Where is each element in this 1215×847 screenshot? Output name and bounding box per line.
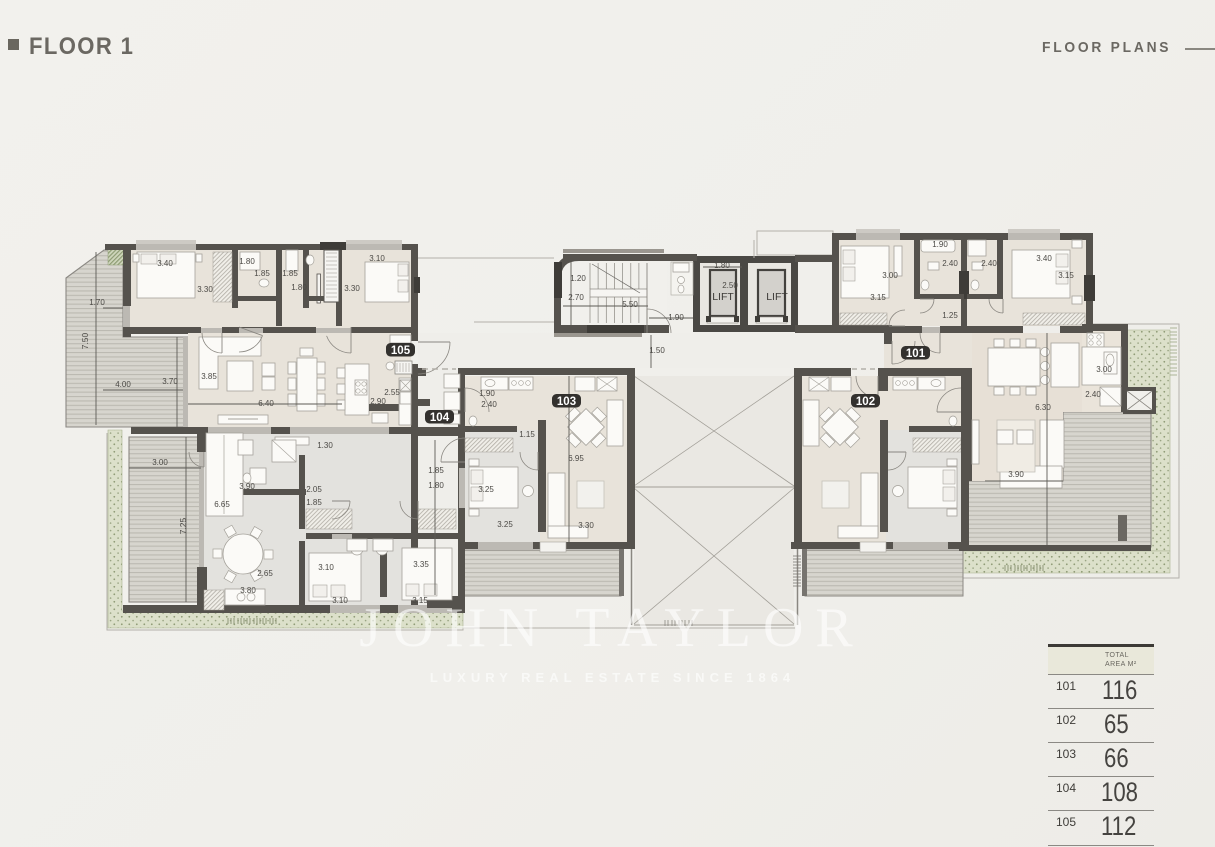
svg-text:3.80: 3.80 — [240, 586, 256, 595]
svg-text:7.50: 7.50 — [80, 332, 90, 349]
svg-text:2.40: 2.40 — [981, 259, 997, 268]
svg-text:1.80: 1.80 — [291, 283, 307, 292]
svg-text:3.85: 3.85 — [201, 372, 217, 381]
svg-text:5.50: 5.50 — [622, 300, 638, 309]
svg-text:1.50: 1.50 — [649, 346, 665, 355]
svg-text:3.40: 3.40 — [157, 259, 173, 268]
svg-text:1.80: 1.80 — [239, 257, 255, 266]
svg-text:1.80: 1.80 — [714, 261, 730, 270]
svg-text:2.55: 2.55 — [384, 388, 400, 397]
svg-text:103: 103 — [557, 396, 576, 408]
svg-text:2.40: 2.40 — [942, 259, 958, 268]
svg-text:101: 101 — [906, 348, 926, 360]
svg-text:3.00: 3.00 — [1096, 365, 1112, 374]
svg-text:102: 102 — [856, 396, 875, 408]
svg-text:6.40: 6.40 — [258, 399, 274, 408]
svg-text:3.15: 3.15 — [1058, 271, 1074, 280]
svg-text:3.90: 3.90 — [1008, 470, 1024, 479]
svg-text:2.50: 2.50 — [722, 281, 738, 290]
svg-text:1.85: 1.85 — [428, 466, 444, 475]
svg-text:104: 104 — [430, 412, 450, 424]
svg-text:1.90: 1.90 — [932, 240, 948, 249]
svg-text:1.80: 1.80 — [428, 481, 444, 490]
svg-text:3.40: 3.40 — [1036, 254, 1052, 263]
svg-text:2.40: 2.40 — [481, 400, 497, 409]
svg-text:2.70: 2.70 — [568, 293, 584, 302]
svg-text:3.00: 3.00 — [882, 271, 898, 280]
svg-text:2.40: 2.40 — [1085, 390, 1101, 399]
svg-text:3.10: 3.10 — [369, 254, 385, 263]
svg-text:3.25: 3.25 — [497, 520, 513, 529]
svg-text:1.90: 1.90 — [668, 313, 684, 322]
svg-text:6.30: 6.30 — [1035, 403, 1051, 412]
svg-text:1.85: 1.85 — [254, 269, 270, 278]
svg-text:3.25: 3.25 — [478, 485, 494, 494]
svg-text:1.25: 1.25 — [942, 311, 958, 320]
svg-text:1.90: 1.90 — [479, 389, 495, 398]
svg-text:6.95: 6.95 — [568, 454, 584, 463]
svg-text:3.30: 3.30 — [344, 284, 360, 293]
svg-text:105: 105 — [391, 345, 411, 357]
svg-text:3.70: 3.70 — [162, 377, 178, 386]
svg-text:1.20: 1.20 — [570, 274, 586, 283]
svg-text:LIFT: LIFT — [766, 291, 788, 303]
svg-text:3.10: 3.10 — [318, 563, 334, 572]
svg-text:4.00: 4.00 — [115, 380, 131, 389]
svg-text:6.65: 6.65 — [214, 500, 230, 509]
svg-text:1.85: 1.85 — [282, 269, 298, 278]
svg-text:1.70: 1.70 — [89, 298, 105, 307]
svg-text:1.15: 1.15 — [519, 430, 535, 439]
svg-text:1.30: 1.30 — [317, 441, 333, 450]
svg-text:2.90: 2.90 — [370, 397, 386, 406]
svg-text:1.85: 1.85 — [306, 498, 322, 507]
svg-text:3.00: 3.00 — [152, 458, 168, 467]
svg-text:LIFT: LIFT — [712, 291, 734, 303]
svg-text:3.35: 3.35 — [413, 560, 429, 569]
svg-text:3.30: 3.30 — [197, 285, 213, 294]
svg-text:3.30: 3.30 — [578, 521, 594, 530]
svg-text:2.05: 2.05 — [306, 485, 322, 494]
svg-text:7.25: 7.25 — [178, 517, 188, 534]
svg-text:3.15: 3.15 — [870, 293, 886, 302]
svg-text:3.90: 3.90 — [239, 482, 255, 491]
svg-text:2.65: 2.65 — [257, 569, 273, 578]
